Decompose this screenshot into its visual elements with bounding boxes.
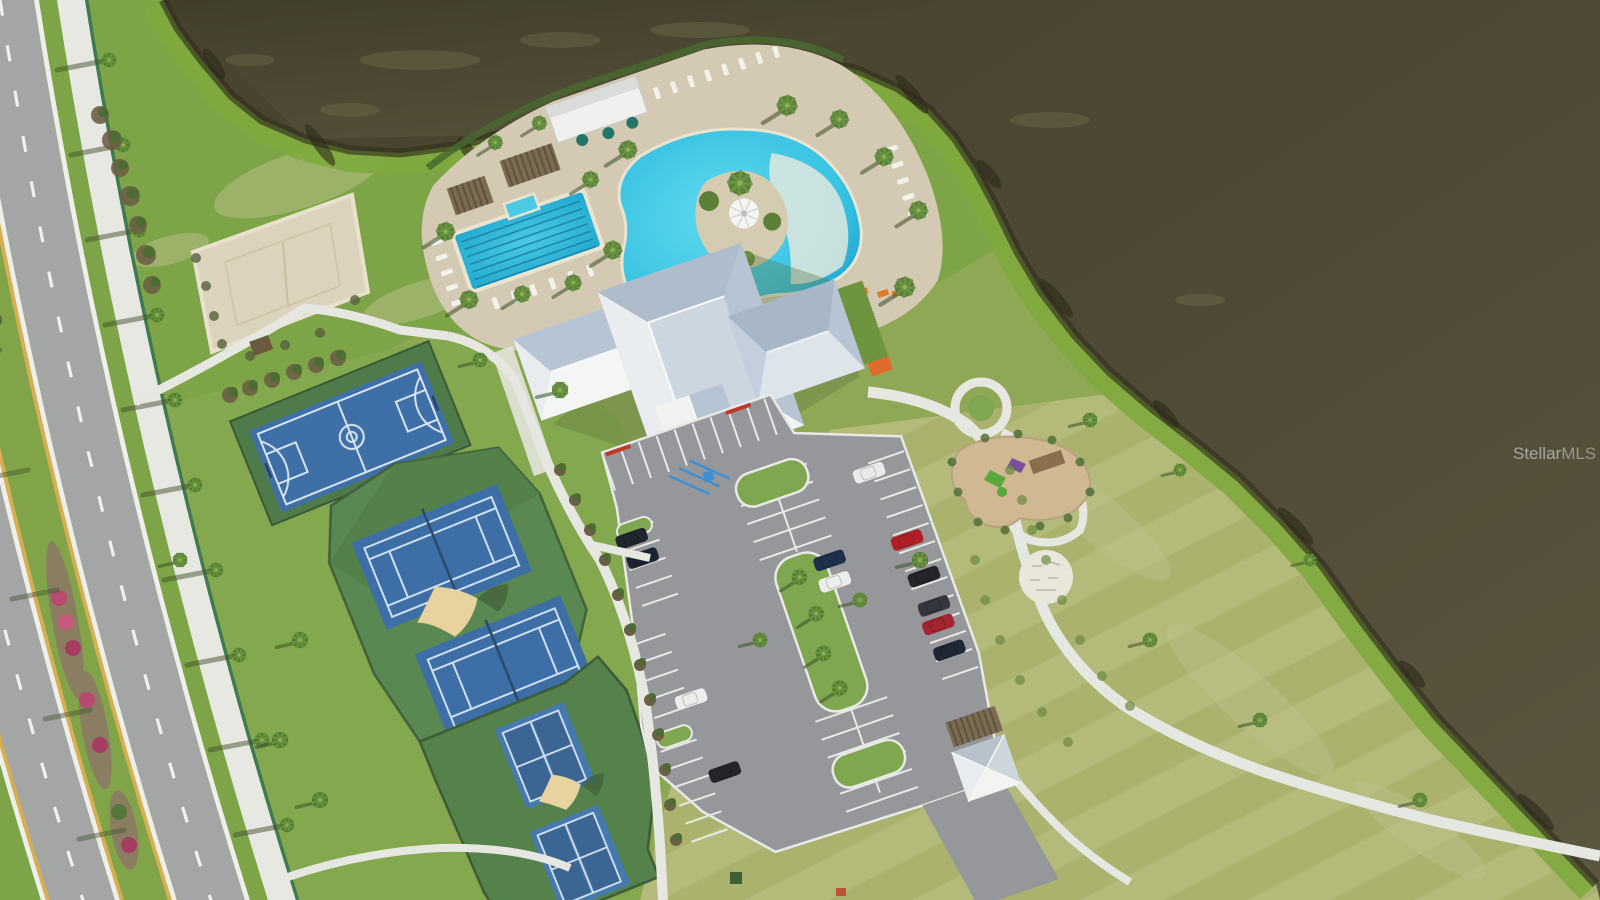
svg-text:StellarMLS: StellarMLS <box>1513 444 1596 463</box>
